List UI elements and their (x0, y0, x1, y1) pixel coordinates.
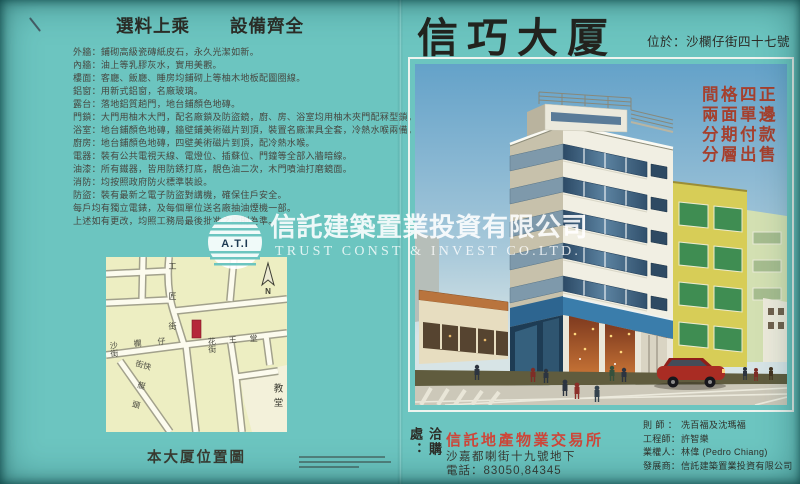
credit-engineer: 工程師：許智樂 (643, 433, 793, 447)
sales-phone: 電話：83050,84345 (446, 462, 562, 478)
pen-mark (29, 17, 41, 32)
credit-value: 林偉 (Pedro Chiang) (681, 447, 768, 457)
credit-label: 則師： (643, 419, 677, 433)
feature-item: 鋁窗：用新式鋁窗，名廠玻璃。 (73, 85, 403, 98)
title-quality: 選料上乘 (116, 13, 190, 38)
sales-agency: 信託地產物業交易所 (446, 429, 604, 450)
contact-label: 洽購處： (406, 427, 444, 484)
feature-item: 門鎖：大門用柚木大門，配名廠鎖及防盜鏡，廚、房、浴室均用柚木夾門配冧型鎖。 (73, 111, 403, 124)
credit-developer: 發展商：信託建築置業投資有限公司 (643, 460, 793, 474)
selling-point: 兩面單邊 (702, 105, 778, 125)
yellow-neighbor-building (673, 182, 747, 367)
left-panel-title: 選料上乘 設備齊全 (116, 13, 304, 38)
building-name-title: 信巧大厦 (417, 4, 617, 64)
svg-text:N: N (265, 287, 271, 296)
svg-text:A.T.I: A.T.I (221, 238, 249, 250)
credit-label: 業權人： (643, 446, 677, 460)
selling-point: 分期付款 (702, 125, 778, 145)
feature-item: 廚房：地台鋪顏色地磚，四壁美術磁片到頂，配冷熱水喉。 (73, 137, 403, 150)
credit-value: 冼百福及沈瑪福 (681, 420, 746, 430)
feature-item: 內牆：油上等乳膠灰水，實用美觀。 (73, 59, 403, 72)
credit-label: 發展商： (643, 460, 677, 474)
brochure-scan: 選料上乘 設備齊全 外牆：鋪砌高級瓷磚紙皮石，永久光潔如新。 內牆：油上等乳膠灰… (0, 0, 800, 484)
feature-item: 浴室：地台鋪顏色地磚，牆壁鋪美術磁片到頂，裝置名廠潔具全套，冷熱水喉兩備。 (73, 124, 403, 137)
feature-item: 外牆：鋪砌高級瓷磚紙皮石，永久光潔如新。 (73, 46, 403, 59)
credit-owner: 業權人：林偉 (Pedro Chiang) (643, 446, 793, 460)
map-caption: 本大厦位置圖 (106, 446, 287, 467)
church-label: 教堂 (272, 383, 282, 412)
printer-fine-print (299, 456, 391, 471)
feature-list: 外牆：鋪砌高級瓷磚紙皮石，永久光潔如新。 內牆：油上等乳膠灰水，實用美觀。 樓面… (73, 46, 403, 228)
fold-crease (397, 0, 403, 484)
feature-item: 防盜：裝有最新之電子防盜對講機，確保住戶安全。 (73, 189, 403, 202)
far-right-buildings (747, 210, 787, 362)
title-equipment: 設備齊全 (230, 13, 304, 38)
location-map: N 工匠街 沙欄仔街 花王堂街 快艇頭街 教堂 (106, 257, 287, 432)
feature-item: 樓面：客廳、飯廳、睡房均鋪砌上等柚木地板配圖圈線。 (73, 72, 403, 85)
credit-value: 信託建築置業投資有限公司 (681, 461, 793, 471)
credit-architect: 則師：冼百福及沈瑪福 (643, 419, 793, 433)
selling-point: 分層出售 (702, 145, 778, 165)
feature-item: 上述如有更改，均照工務局最後批准之圖則為準。 (73, 215, 403, 228)
building-address: 位於：沙欄仔街四十七號 (600, 31, 790, 50)
feature-item: 油漆：所有鐵器，皆用防銹打底，靚色油二次，木門噴油打磨鏡面。 (73, 163, 403, 176)
project-credits: 則師：冼百福及沈瑪福 工程師：許智樂 業權人：林偉 (Pedro Chiang)… (643, 419, 793, 473)
feature-item: 露台：落地鋁質趟門，地台鋪顏色地磚。 (73, 98, 403, 111)
illustration-frame: 間格四正 兩面單邊 分期付款 分層出售 (408, 57, 794, 412)
building-location-marker (192, 320, 201, 338)
feature-item: 每戶均有獨立電錶，及每個單位送名廠抽油煙機一部。 (73, 202, 403, 215)
credit-label: 工程師： (643, 433, 677, 447)
feature-item: 電器：裝有公共電視天線、電燈位、插蘇位、門鐘等全部入牆暗線。 (73, 150, 403, 163)
selling-points: 間格四正 兩面單邊 分期付款 分層出售 (702, 85, 778, 165)
feature-item: 消防：均按照政府防火標準裝設。 (73, 176, 403, 189)
credit-value: 許智樂 (681, 434, 709, 444)
selling-point: 間格四正 (702, 85, 778, 105)
